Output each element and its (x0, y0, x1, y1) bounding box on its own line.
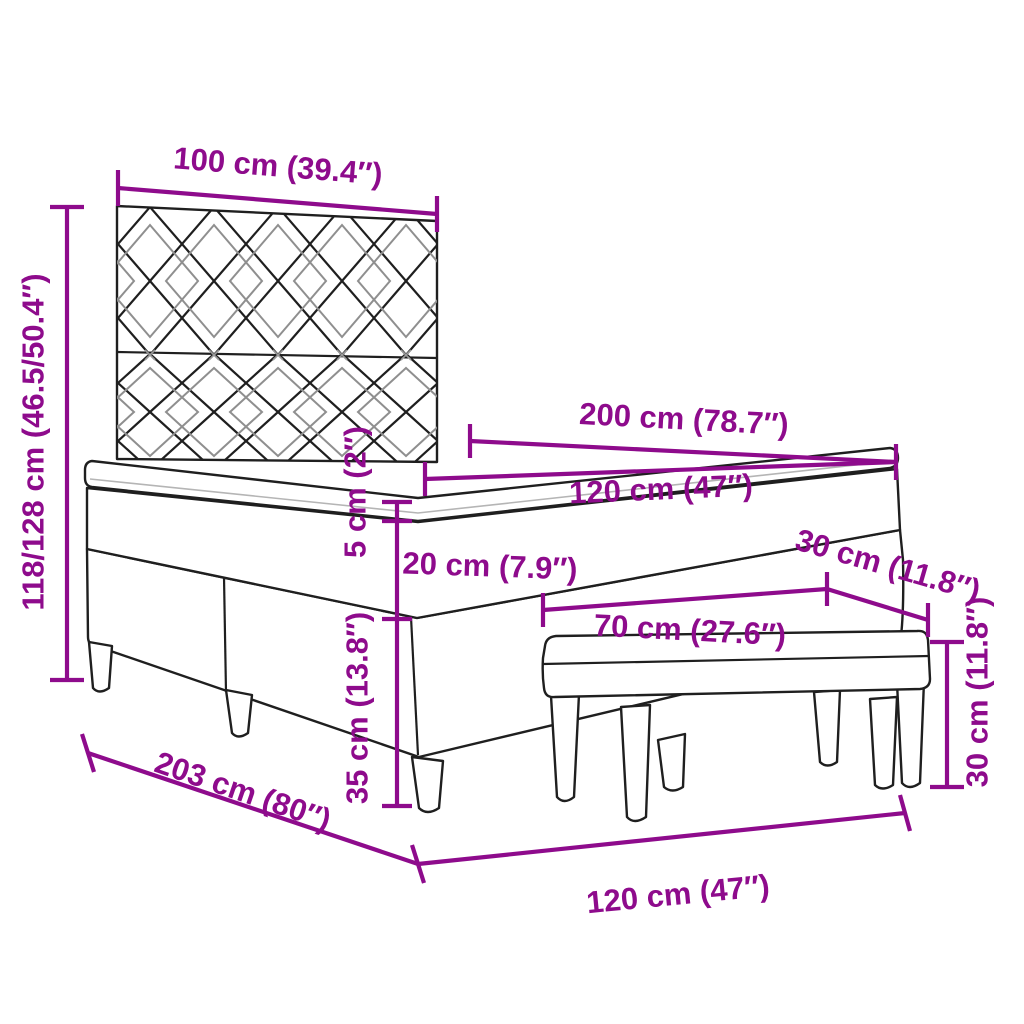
bench-leg (621, 705, 650, 821)
bench-leg (551, 694, 579, 801)
dim-topper-height-label: 5 cm (2″) (340, 426, 371, 558)
bed-dimension-diagram: 100 cm (39.4″) 118/128 cm (46.5/50.4″) 2… (0, 0, 1024, 1024)
bench-group (543, 631, 930, 821)
bed-leg (658, 734, 685, 791)
bed-diagram-drawing (0, 0, 1024, 1024)
bed-leg (89, 642, 112, 692)
dim-frame-height-label: 35 cm (13.8″) (342, 612, 373, 804)
dim-mattress-height-label: 20 cm (7.9″) (402, 547, 578, 584)
bed-leg (226, 690, 252, 737)
bed-leg (412, 757, 443, 812)
dim-mattress-width-label: 120 cm (47″) (569, 470, 754, 509)
bed-frame-group (22, 206, 903, 812)
bench-leg (814, 690, 840, 766)
dim-bench-height-label: 30 cm (11.8″) (962, 597, 993, 788)
bench-leg (870, 697, 897, 789)
dim-overall-height-line (50, 207, 84, 680)
dim-overall-height-label: 118/128 cm (46.5/50.4″) (18, 273, 49, 610)
bench-leg (897, 681, 924, 787)
dim-bed-width-line (418, 795, 910, 864)
